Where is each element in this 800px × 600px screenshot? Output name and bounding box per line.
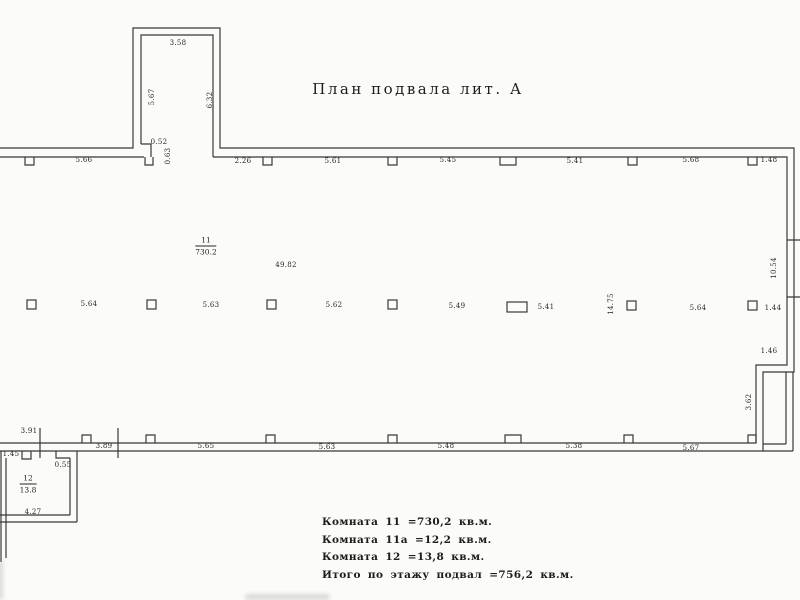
legend-line: Комната 12 =13,8 кв.м. [322, 549, 574, 567]
dimension-label: 10.54 [770, 257, 778, 279]
dimension-label: 0.52 [151, 138, 168, 146]
scan-artifact [245, 594, 330, 600]
dimension-label: 49.82 [275, 261, 297, 269]
dimension-label: 5.63 [319, 443, 336, 451]
dimension-label: 5.62 [326, 301, 343, 309]
room-area: 730.2 [195, 247, 216, 257]
dimension-label: 5.41 [538, 303, 555, 311]
labels-layer: План подвала лит. А 11 730.2 12 13.8 5.6… [0, 0, 800, 600]
dimension-label: 5.41 [567, 157, 584, 165]
dimension-label: 5.49 [449, 302, 466, 310]
scan-artifact [0, 560, 3, 600]
dimension-label: 5.64 [690, 304, 707, 312]
dimension-label: 5.67 [148, 89, 156, 106]
dimension-label: 3.58 [170, 39, 187, 47]
room-area: 13.8 [20, 485, 37, 495]
dimension-label: 5.67 [683, 444, 700, 452]
dimension-label: 5.64 [81, 300, 98, 308]
dimension-label: 5.66 [76, 156, 93, 164]
dimension-label: 14.75 [607, 293, 615, 315]
dimension-label: 2.26 [235, 157, 252, 165]
dimension-label: 3.62 [745, 394, 753, 411]
page-title: План подвала лит. А [312, 80, 523, 98]
legend-line: Комната 11а =12,2 кв.м. [322, 532, 574, 550]
dimension-label: 5.63 [203, 301, 220, 309]
room-label-11: 11 730.2 [195, 236, 216, 257]
dimension-label: 5.48 [438, 442, 455, 450]
dimension-label: 1.46 [761, 347, 778, 355]
dimension-label: 5.38 [566, 442, 583, 450]
floor-plan-page: План подвала лит. А 11 730.2 12 13.8 5.6… [0, 0, 800, 600]
dimension-label: 3.91 [21, 427, 38, 435]
dimension-label: 0.55 [55, 461, 72, 469]
dimension-label: 5.68 [683, 156, 700, 164]
dimension-label: 1.44 [765, 304, 782, 312]
dimension-label: 0.63 [164, 148, 172, 165]
legend-line: Итого по этажу подвал =756,2 кв.м. [322, 567, 574, 585]
dimension-label: 1.48 [761, 156, 778, 164]
dimension-label: 1.45 [3, 450, 20, 458]
area-legend: Комната 11 =730,2 кв.м. Комната 11а =12,… [322, 514, 574, 584]
dimension-label: 6.32 [206, 92, 214, 109]
room-number: 12 [20, 474, 37, 485]
room-number: 11 [195, 236, 216, 247]
dimension-label: 5.45 [440, 156, 457, 164]
dimension-label: 3.89 [96, 442, 113, 450]
legend-line: Комната 11 =730,2 кв.м. [322, 514, 574, 532]
dimension-label: 4.27 [25, 508, 42, 516]
dimension-label: 5.61 [325, 157, 342, 165]
room-label-12: 12 13.8 [20, 474, 37, 495]
dimension-label: 5.65 [198, 442, 215, 450]
